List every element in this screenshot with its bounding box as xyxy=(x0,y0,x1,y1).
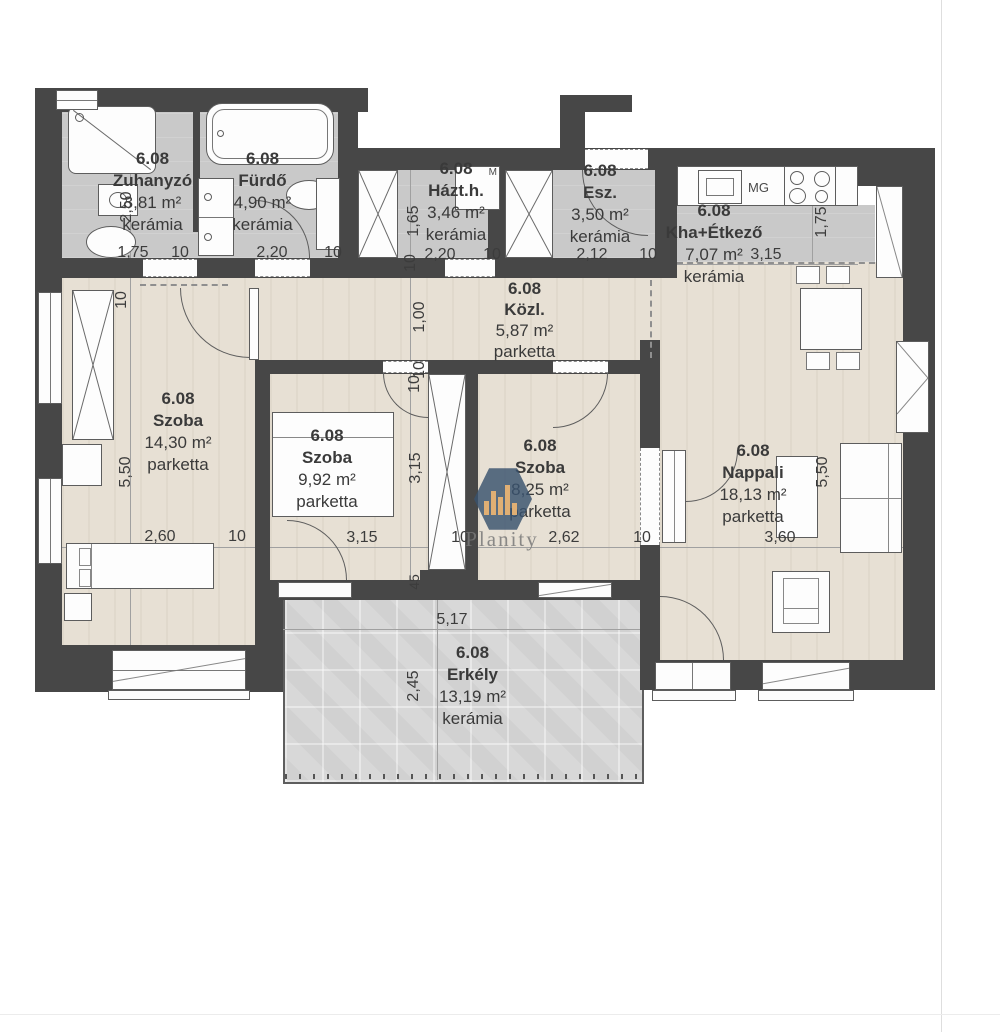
dim-10: 10 xyxy=(158,244,202,262)
room-name: Szoba xyxy=(267,447,387,469)
door-leaf-szoba1 xyxy=(249,288,259,360)
room-number: 6.08 xyxy=(410,642,535,664)
dim-10: 10 xyxy=(620,529,664,547)
room-label-kozl: 6.08 Közl. 5,87 m² parketta xyxy=(462,278,587,362)
dining-chair xyxy=(806,352,830,370)
room-floor: parketta xyxy=(462,341,587,362)
room-area: 14,30 m² xyxy=(118,432,238,454)
window-szoba1 xyxy=(112,650,246,690)
dim-kitchen-height: 1,75 xyxy=(813,200,831,244)
room-number: 6.08 xyxy=(462,278,587,299)
room-number: 6.08 xyxy=(267,425,387,447)
room-floor: kerámia xyxy=(650,266,778,288)
door-leaf-nappali xyxy=(662,450,686,543)
kitchen-niche xyxy=(876,186,903,278)
room-floor: kerámia xyxy=(205,214,320,236)
wall-chimney-stub2 xyxy=(560,95,585,170)
room-number: 6.08 xyxy=(400,158,512,180)
scan-edge-bottom xyxy=(0,1014,1000,1015)
dim-kitchen-width: 3,15 xyxy=(744,246,788,264)
window-sill xyxy=(758,690,854,701)
armchair xyxy=(772,571,830,633)
dim-szoba2-height: 3,15 xyxy=(407,446,425,490)
room-area: 9,92 m² xyxy=(267,469,387,491)
wall-bath-divider xyxy=(338,88,358,270)
room-label-kha: 6.08 Kha+Étkező 7,07 m² kerámia xyxy=(650,200,778,288)
room-area: 18,13 m² xyxy=(692,484,814,506)
room-label-nappali: 6.08 Nappali 18,13 m² parketta xyxy=(692,440,814,528)
room-label-furdo: 6.08 Fürdő 4,90 m² kerámia xyxy=(205,148,320,236)
room-name: Nappali xyxy=(692,462,814,484)
window-sill xyxy=(652,690,736,701)
dim-10: 10 xyxy=(470,246,514,264)
dim-szoba1-height: 5,50 xyxy=(117,450,135,494)
dining-chair xyxy=(826,266,850,284)
dim-erkely-width: 5,17 xyxy=(430,611,474,629)
dim-erkely-height: 2,45 xyxy=(405,664,423,708)
room-label-erkely: 6.08 Erkély 13,19 m² kerámia xyxy=(410,642,535,730)
dim-10: 10 xyxy=(113,278,131,322)
room-number: 6.08 xyxy=(480,435,600,457)
dishwasher-label: MG xyxy=(748,180,769,195)
kitchen-sink xyxy=(698,170,742,204)
dim-furdo-width: 2,20 xyxy=(250,244,294,262)
room-label-esz: 6.08 Esz. 3,50 m² kerámia xyxy=(545,160,655,248)
room-number: 6.08 xyxy=(205,148,320,170)
dim-hazth-width: 2,20 xyxy=(418,246,462,264)
dining-table xyxy=(800,288,862,350)
dim-hazth-height: 1,65 xyxy=(405,199,423,243)
dim-10: 10 xyxy=(406,362,424,406)
room-area: 5,87 m² xyxy=(462,320,587,341)
window-nappali xyxy=(762,662,850,690)
sofa xyxy=(840,443,902,553)
room-name: Fürdő xyxy=(205,170,320,192)
window-right xyxy=(896,341,929,433)
dim-wall-45: 45 xyxy=(406,560,422,604)
room-name: Erkély xyxy=(410,664,535,686)
dim-zuhanyzo-width: 1,75 xyxy=(111,244,155,262)
dim-nappali-width: 3,60 xyxy=(758,529,802,547)
room-number: 6.08 xyxy=(95,148,210,170)
room-name: Esz. xyxy=(545,182,655,204)
room-floor: parketta xyxy=(692,506,814,528)
room-number: 6.08 xyxy=(650,200,778,222)
room-floor: kerámia xyxy=(410,708,535,730)
window-sill xyxy=(108,690,250,700)
room-floor: kerámia xyxy=(95,214,210,236)
bed-szoba1 xyxy=(66,543,214,589)
balcony-edge-ticks xyxy=(285,774,638,779)
dresser xyxy=(62,444,102,486)
dining-chair xyxy=(796,266,820,284)
window-top-left xyxy=(56,90,98,110)
room-label-zuhanyzo: 6.08 Zuhanyzó 3,81 m² kerámia xyxy=(95,148,210,236)
dim-10: 10 xyxy=(311,244,355,262)
balcony-door-nappali xyxy=(655,662,731,690)
room-number: 6.08 xyxy=(545,160,655,182)
wardrobe xyxy=(72,290,114,440)
room-name: Kha+Étkező xyxy=(650,222,778,244)
dim-10: 10 xyxy=(626,246,670,264)
room-area: 13,19 m² xyxy=(410,686,535,708)
scan-edge-right xyxy=(941,0,942,1032)
dining-chair xyxy=(836,352,860,370)
room-area: 3,81 m² xyxy=(95,192,210,214)
room-floor: kerámia xyxy=(545,226,655,248)
floor-plan: M MG xyxy=(0,0,1000,1032)
door-gap-szoba3 xyxy=(553,361,608,373)
room-name: Közl. xyxy=(462,299,587,320)
dim-10: 10 xyxy=(215,528,259,546)
room-area: 3,50 m² xyxy=(545,204,655,226)
room-name: Zuhanyzó xyxy=(95,170,210,192)
dim-nappali-height: 5,50 xyxy=(814,450,832,494)
window-left-2 xyxy=(38,478,62,564)
room-number: 6.08 xyxy=(692,440,814,462)
dim-esz-width: 2,12 xyxy=(570,246,614,264)
room-name: Szoba xyxy=(118,410,238,432)
dim-line xyxy=(283,629,640,630)
dim-szoba1-width: 2,60 xyxy=(138,528,182,546)
dim-zuhanyzo-height: 2,50 xyxy=(118,185,136,229)
dim-szoba2-width: 3,15 xyxy=(340,529,384,547)
shaft xyxy=(358,170,398,258)
boundary-corridor-szoba1 xyxy=(140,284,228,286)
dim-kozl-height: 1,00 xyxy=(411,295,429,339)
nightstand xyxy=(64,593,92,621)
balcony-door-szoba2 xyxy=(278,582,352,598)
room-floor: parketta xyxy=(267,491,387,513)
planity-watermark-text: Planity xyxy=(452,527,552,552)
room-area: 4,90 m² xyxy=(205,192,320,214)
wall-kitchen-stub xyxy=(858,168,903,186)
room-label-szoba1: 6.08 Szoba 14,30 m² parketta xyxy=(118,388,238,476)
room-label-szoba2: 6.08 Szoba 9,92 m² parketta xyxy=(267,425,387,513)
window-szoba3 xyxy=(538,582,612,598)
room-floor: parketta xyxy=(118,454,238,476)
boundary-corridor-nappali xyxy=(650,280,652,358)
window-left-1 xyxy=(38,292,62,404)
room-number: 6.08 xyxy=(118,388,238,410)
